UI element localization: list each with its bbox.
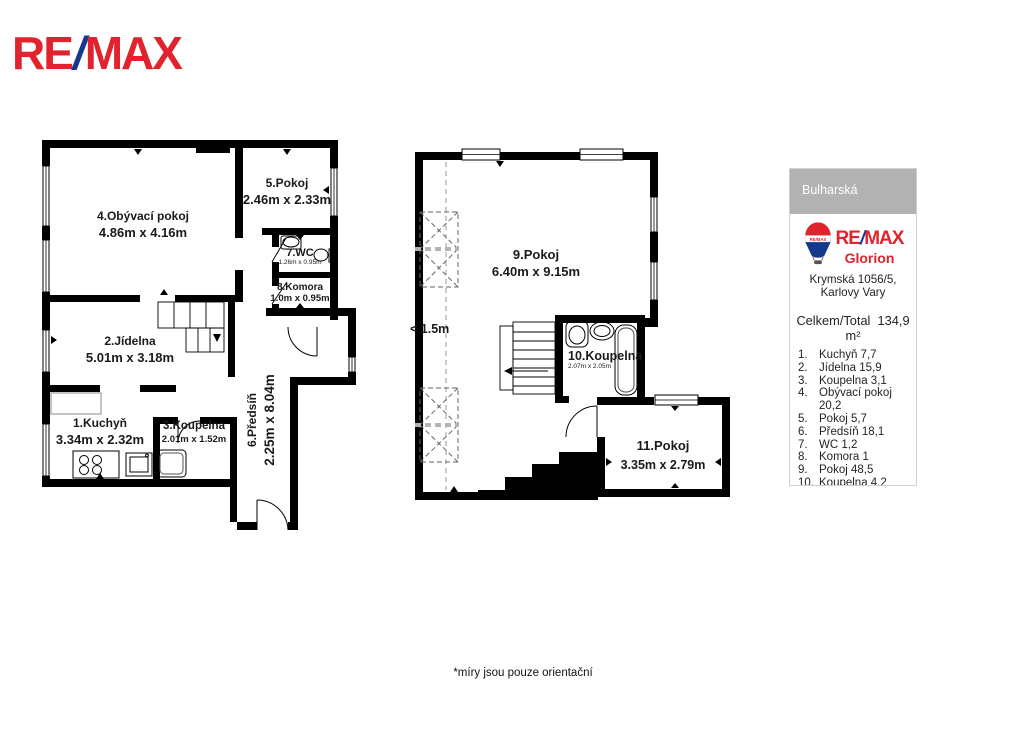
room-dims: 4.86m x 4.16m (68, 225, 218, 242)
room-label-jidelna: 2.Jídelna 5.01m x 3.18m (55, 334, 205, 366)
room-name: 3.Koupelna (139, 420, 249, 434)
room-label-pokoj-9: 9.Pokoj 6.40m x 9.15m (461, 247, 611, 281)
room-name: 2.Jídelna (55, 334, 205, 350)
room-label-predsin: 6.Předsíň 2.25m x 8.04m (245, 335, 287, 505)
listing-info-panel: Bulharská RE/MAX RE/MAX Glorion Krymská … (789, 168, 917, 486)
room-dims: 2.46m x 2.33m (217, 192, 357, 209)
office-name: Glorion (836, 250, 904, 266)
office-wordmark: RE/MAX Glorion (836, 229, 904, 266)
room-name: 6.Předsíň (245, 335, 261, 505)
room-name: 4.Obývací pokoj (68, 209, 218, 225)
room-list-item: 9. Pokoj 48,5 (798, 464, 912, 477)
remax-logo-slash: / (72, 27, 85, 79)
room-dims: 1.26m x 0.95m (265, 259, 335, 266)
remax-logo: RE/MAX (12, 30, 181, 76)
room-list-item: 3. Koupelna 3,1 (798, 375, 912, 388)
office-logo: RE/MAX RE/MAX Glorion (790, 221, 916, 271)
total-area: Celkem/Total 134,9 m² (790, 313, 916, 343)
panel-logo-max: MAX (864, 228, 903, 249)
total-area-label: Celkem/Total (796, 313, 870, 328)
remax-balloon-icon: RE/MAX (803, 221, 833, 265)
room-label-pokoj-11: 11.Pokoj 3.35m x 2.79m (593, 436, 733, 474)
location-name: Bulharská (802, 183, 858, 197)
room-dims: 2.07m x 2.05m (568, 363, 668, 370)
room-name: 11.Pokoj (593, 436, 733, 456)
room-name: 8.Komora (258, 282, 342, 294)
floorplan-sheet: RE/MAX 4.Obývací pokoj 4.86m x 4.16m 5.P… (0, 0, 1024, 733)
room-label-pokoj-5: 5.Pokoj 2.46m x 2.33m (217, 176, 357, 208)
remax-logo-max: MAX (85, 27, 181, 79)
room-label-wc: 7.WC 1.26m x 0.95m (265, 247, 335, 266)
room-dims: 3.35m x 2.79m (593, 456, 733, 475)
room-list-item: 5. Pokoj 5,7 (798, 413, 912, 426)
room-dims: 1.0m x 0.95m (258, 294, 342, 305)
room-name: 10.Koupelna (568, 349, 668, 363)
room-list-item: 6. Předsíň 18,1 (798, 426, 912, 439)
room-label-komora: 8.Komora 1.0m x 0.95m (258, 282, 342, 304)
room-list-item: 4. Obývací pokoj 20,2 (798, 387, 912, 413)
remax-logo-re: RE (12, 27, 72, 79)
listing-address: Krymská 1056/5, Karlovy Vary (790, 273, 916, 299)
room-dims: 2.01m x 1.52m (139, 434, 249, 445)
room-dims: 6.40m x 9.15m (461, 264, 611, 281)
room-list-item: 7. WC 1,2 (798, 439, 912, 452)
room-label-obyvaci-pokoj: 4.Obývací pokoj 4.86m x 4.16m (68, 209, 218, 241)
room-dims: 2.25m x 8.04m (261, 335, 279, 505)
room-list-item: 8. Komora 1 (798, 451, 912, 464)
room-list-item: 1. Kuchyň 7,7 (798, 349, 912, 362)
room-name: 7.WC (265, 247, 335, 259)
room-list-item: 10. Koupelna 4,2 (798, 477, 912, 486)
right-plan-furniture (500, 321, 637, 437)
room-name: 9.Pokoj (461, 247, 611, 264)
panel-logo-re: RE (836, 228, 860, 249)
ceiling-height-annotation: < 1.5m (410, 322, 449, 336)
balloon-band-text: RE/MAX (809, 237, 826, 242)
room-label-koupelna-3: 3.Koupelna 2.01m x 1.52m (139, 420, 249, 445)
room-list-item: 2. Jídelna 15,9 (798, 362, 912, 375)
room-area-list: 1. Kuchyň 7,7 2. Jídelna 15,9 3. Koupeln… (790, 349, 916, 486)
location-header: Bulharská (790, 169, 916, 214)
room-label-koupelna-10: 10.Koupelna 2.07m x 2.05m (528, 349, 668, 371)
room-dims: 5.01m x 3.18m (55, 350, 205, 367)
disclaimer-note: *míry jsou pouze orientační (363, 667, 683, 679)
room-name: 5.Pokoj (217, 176, 357, 192)
